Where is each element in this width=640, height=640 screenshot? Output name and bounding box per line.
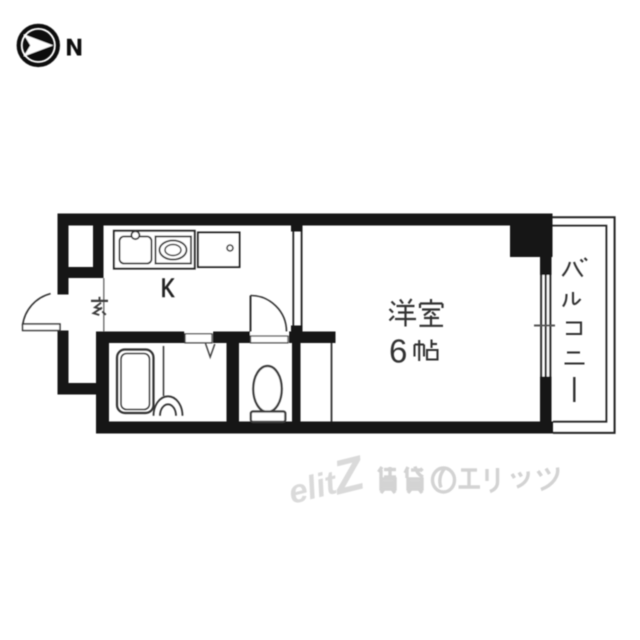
svg-text:6: 6 xyxy=(389,333,407,370)
